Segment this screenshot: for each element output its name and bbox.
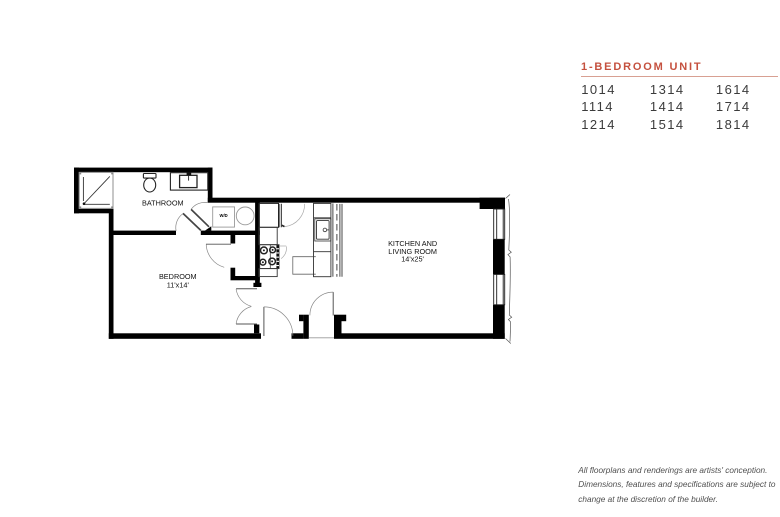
svg-text:BATHROOM: BATHROOM bbox=[142, 198, 184, 207]
svg-text:14'x25': 14'x25' bbox=[401, 255, 424, 264]
svg-text:11'x14': 11'x14' bbox=[167, 280, 190, 289]
svg-text:W/D: W/D bbox=[220, 213, 228, 218]
